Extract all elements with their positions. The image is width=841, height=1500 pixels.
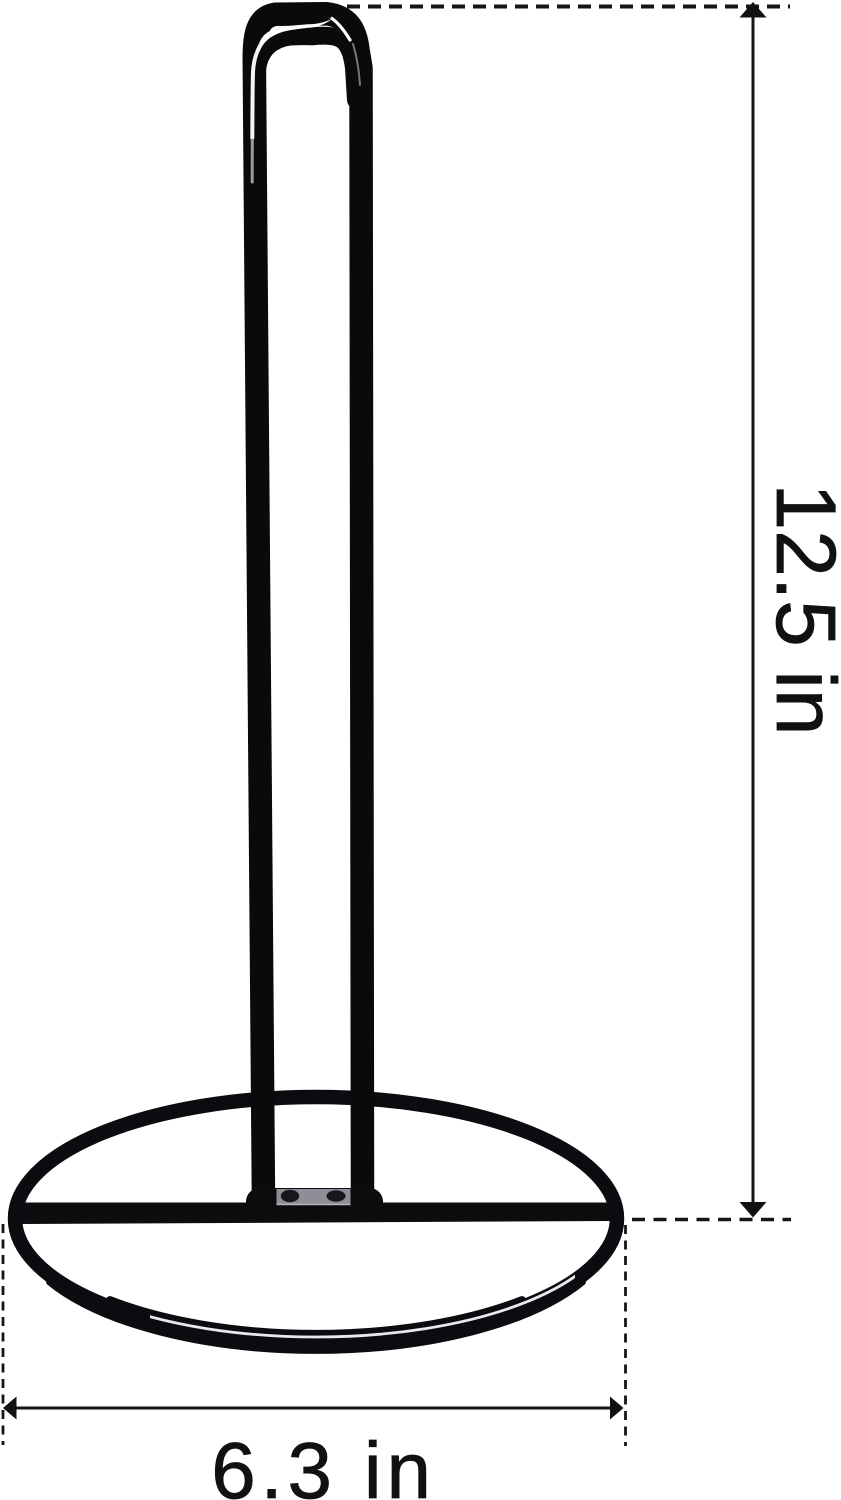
svg-text:6.3 in: 6.3 in [211, 1426, 436, 1500]
svg-text:12.5 in: 12.5 in [759, 483, 841, 735]
